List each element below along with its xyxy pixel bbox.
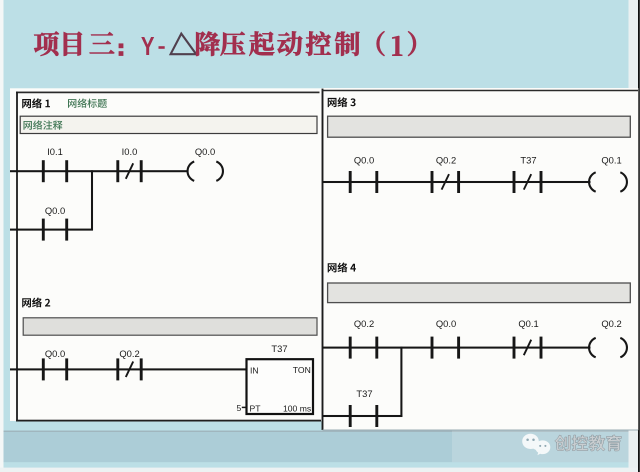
svg-text:I0.0: I0.0 bbox=[122, 146, 138, 157]
svg-text:T37: T37 bbox=[520, 155, 536, 166]
svg-text:5: 5 bbox=[237, 403, 242, 413]
svg-text:T37: T37 bbox=[356, 388, 372, 399]
svg-text:PT: PT bbox=[250, 403, 262, 413]
svg-text:Y: Y bbox=[141, 32, 155, 61]
svg-text:Q0.0: Q0.0 bbox=[45, 348, 65, 359]
svg-text:Q0.0: Q0.0 bbox=[195, 146, 215, 157]
svg-text:Q0.2: Q0.2 bbox=[436, 155, 456, 166]
svg-text:T37: T37 bbox=[271, 343, 287, 354]
svg-text:Q0.2: Q0.2 bbox=[119, 348, 139, 359]
svg-text:Q0.0: Q0.0 bbox=[45, 205, 65, 216]
svg-text:IN: IN bbox=[250, 365, 259, 375]
svg-text:I0.1: I0.1 bbox=[47, 146, 63, 157]
svg-text:Q0.1: Q0.1 bbox=[518, 318, 538, 329]
svg-text:Q0.0: Q0.0 bbox=[354, 155, 374, 166]
svg-text:Q0.2: Q0.2 bbox=[354, 318, 374, 329]
svg-text:Q0.1: Q0.1 bbox=[601, 155, 621, 166]
svg-text:Q0.0: Q0.0 bbox=[436, 318, 456, 329]
svg-text:TON: TON bbox=[293, 365, 311, 375]
svg-text:100 ms: 100 ms bbox=[283, 403, 311, 413]
svg-text:Q0.2: Q0.2 bbox=[601, 318, 621, 329]
